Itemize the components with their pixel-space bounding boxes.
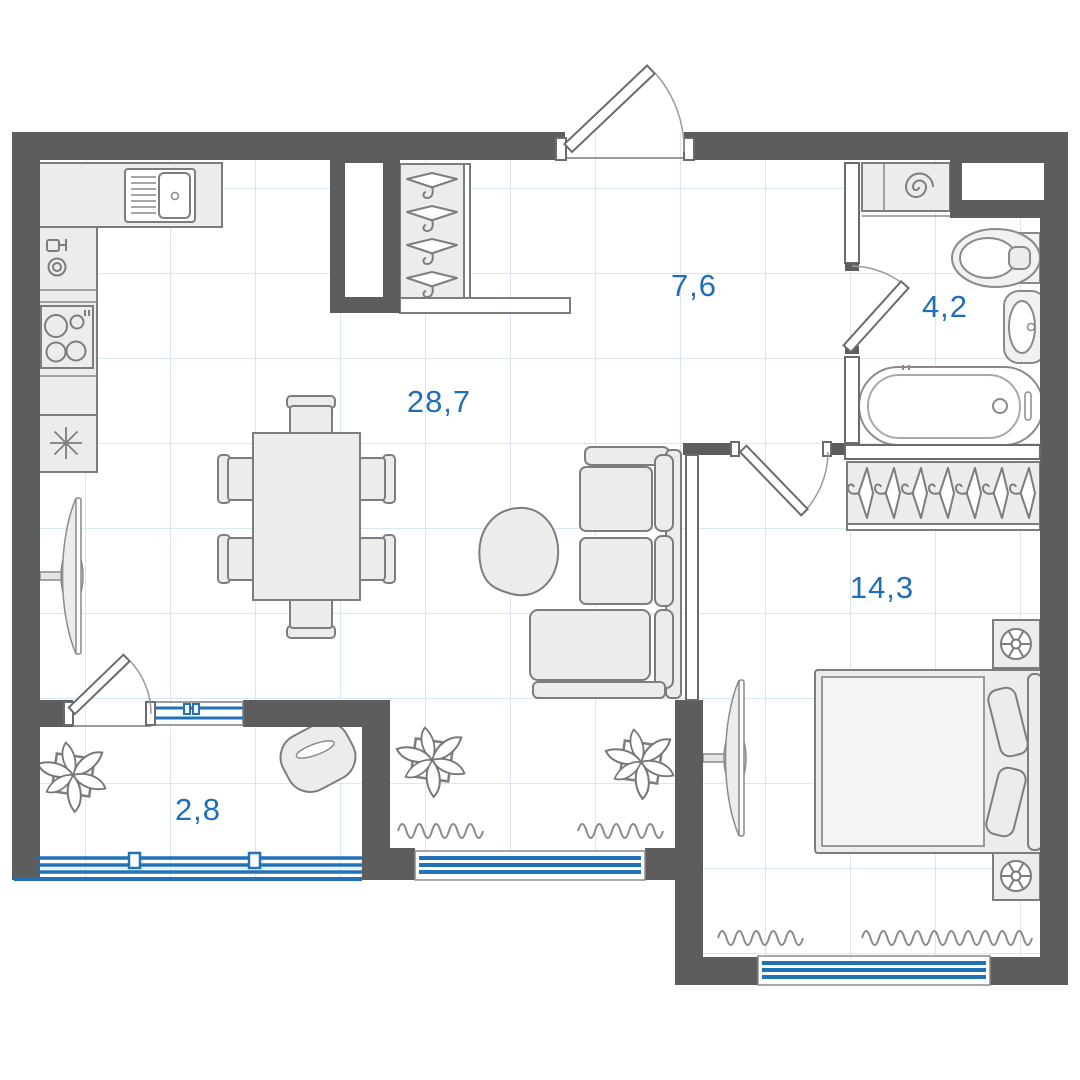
headboard	[1028, 674, 1042, 850]
window-living	[415, 851, 645, 880]
floor-plan-canvas: 28,7 7,6 4,2 14,3 2,8	[0, 0, 1080, 1080]
refrigerator	[35, 415, 97, 472]
washbasin	[1004, 291, 1046, 363]
bathtub	[859, 365, 1043, 445]
room-label-bedroom: 14,3	[850, 570, 914, 605]
entry-wardrobe	[400, 164, 470, 298]
shoe-shelf	[400, 298, 570, 313]
wall-niche	[962, 163, 1044, 200]
window-bedroom	[758, 956, 990, 985]
dining-table	[253, 433, 360, 600]
room-label-living-kitchen: 28,7	[407, 384, 471, 419]
room-label-bathroom: 4,2	[922, 289, 968, 324]
double-bed	[815, 670, 1048, 853]
window-balcony-door-side	[151, 702, 243, 725]
kitchen-sink	[125, 169, 195, 222]
wall-niche	[345, 163, 383, 297]
coffee-table	[479, 508, 558, 595]
floor-plan: 28,7 7,6 4,2 14,3 2,8	[0, 0, 1080, 1080]
room-label-balcony: 2,8	[175, 792, 221, 827]
washing-machine	[862, 163, 950, 216]
toilet	[952, 229, 1040, 287]
bedroom-wardrobe	[847, 462, 1040, 530]
room-label-hallway: 7,6	[671, 268, 717, 303]
nightstand	[993, 852, 1040, 900]
nightstand	[993, 620, 1040, 668]
